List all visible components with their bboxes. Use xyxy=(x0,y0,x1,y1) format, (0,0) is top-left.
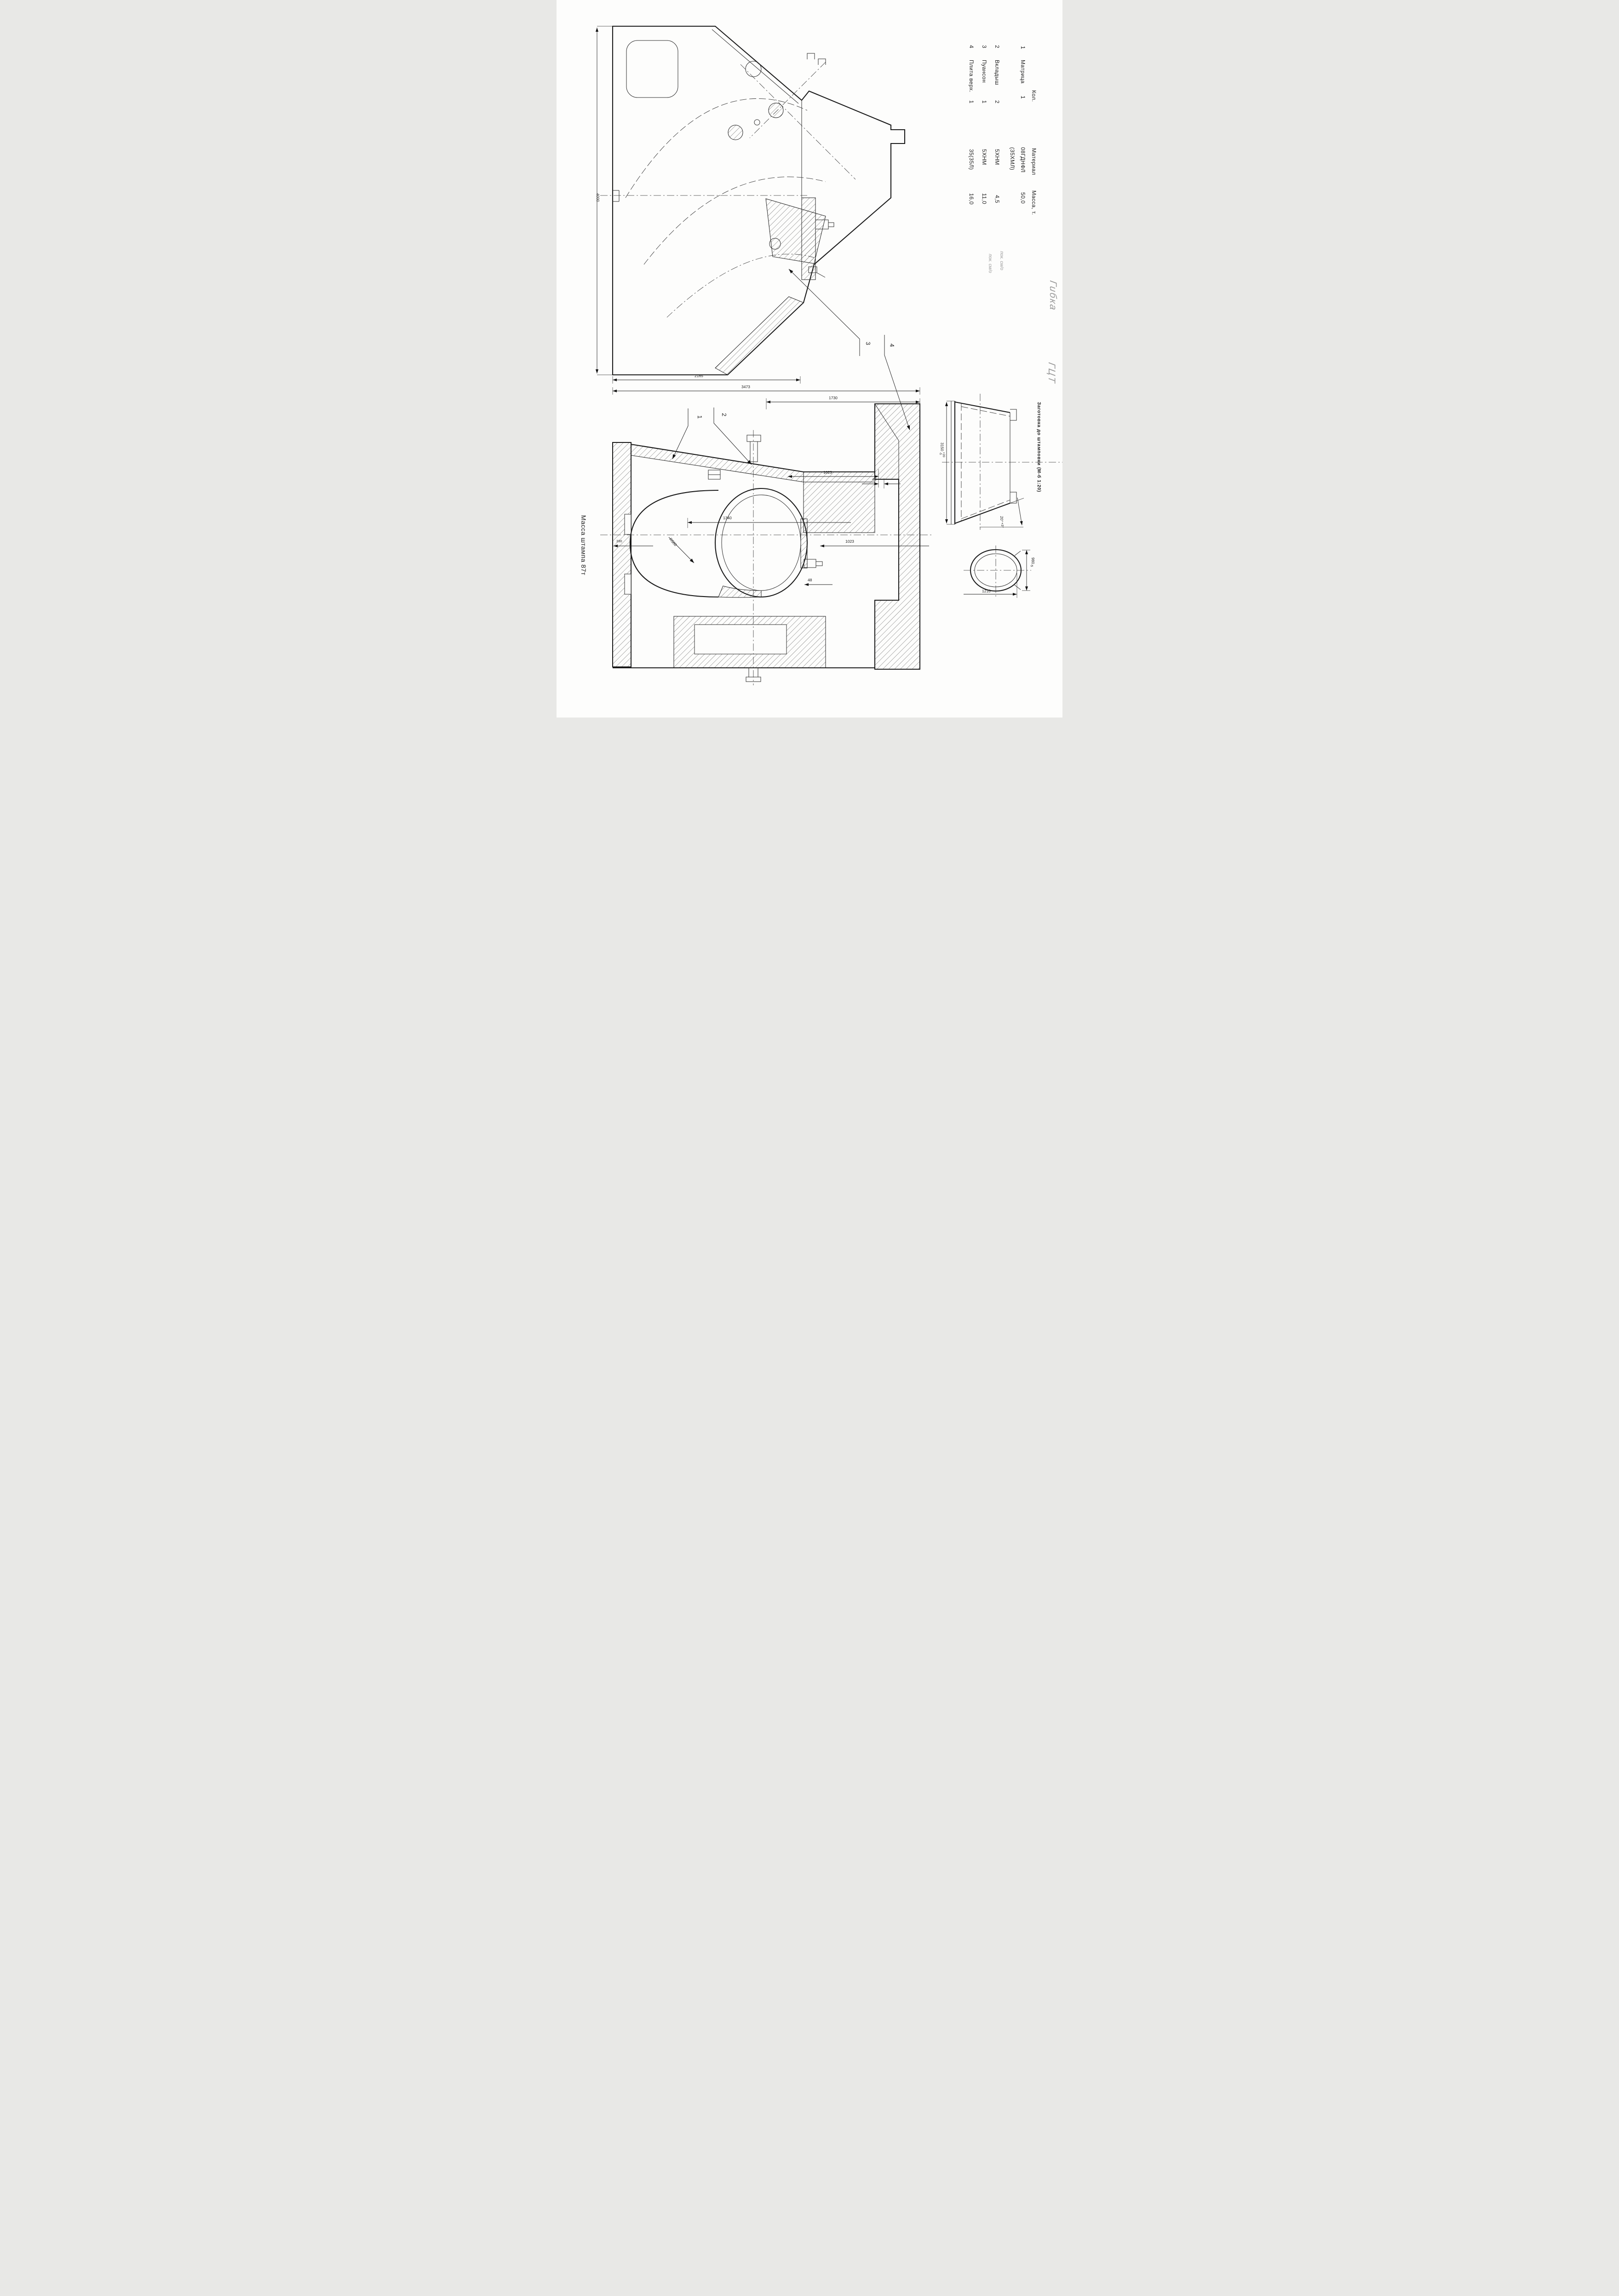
punch-section xyxy=(766,199,826,264)
dowel-section xyxy=(769,103,783,118)
left-wall xyxy=(613,442,631,667)
dim-980-tol: -5 xyxy=(1030,564,1033,567)
dim-1730: 1730 xyxy=(829,396,838,400)
dim-980-value: 980 xyxy=(1031,557,1035,564)
dim-3473: 3473 xyxy=(741,385,750,389)
top-plate xyxy=(804,472,875,482)
pencil-note-row3: пок. см/о xyxy=(987,254,993,273)
row2-material: 5ХНМ xyxy=(994,149,1000,165)
dim-4000: 4000 xyxy=(596,193,600,202)
blank-view xyxy=(942,394,1062,530)
cusp-section xyxy=(718,586,761,597)
dim-1210: 1210 xyxy=(982,589,991,593)
row1-name: Матрица xyxy=(1020,60,1026,84)
row1-material: 08ГДНФЛ xyxy=(1020,147,1026,172)
table-header-qty: Кол. xyxy=(1031,90,1037,102)
dim-angle: 20°+3° xyxy=(999,516,1004,528)
row2-mass: 4,5 xyxy=(994,195,1000,203)
dim-3150: 3150+20-5 xyxy=(939,442,945,457)
section-marks xyxy=(807,53,826,65)
dim-angle-value: 20° xyxy=(999,516,1004,522)
dim-2165: 2165 xyxy=(695,374,703,378)
dim-48: 48 xyxy=(808,578,812,582)
row1-alt-material: (35ХМЛ) xyxy=(1009,147,1015,170)
wall-notch xyxy=(625,574,631,594)
row3-material: 5ХНМ xyxy=(981,149,987,165)
blank-caption: Заготовка до штамповки (М-б 1:20) xyxy=(1036,402,1041,492)
row2-qty: 2 xyxy=(994,100,1000,103)
slot-opening xyxy=(626,40,678,98)
bolt-body xyxy=(750,442,758,462)
row1-qty: 1 xyxy=(1020,96,1026,99)
row4-no: 4 xyxy=(968,45,974,48)
row3-no: 3 xyxy=(981,45,987,48)
pencil-note-row2: пок. см/о xyxy=(999,251,1004,270)
table-header-material: Материал xyxy=(1031,148,1037,175)
dim-3150-tol-plus: +20 xyxy=(942,452,945,457)
row1-mass: 50,0 xyxy=(1020,192,1026,204)
upper-view xyxy=(597,26,905,375)
angle-leader xyxy=(1017,498,1022,525)
bolt-hole xyxy=(746,61,761,77)
dim-3150-value: 3150 xyxy=(940,442,944,451)
dim-3150-tol-minus: -5 xyxy=(939,452,942,457)
dim-angle-tol: +3° xyxy=(1000,522,1005,528)
row4-mass: 16,0 xyxy=(968,193,974,205)
drawing-linework xyxy=(557,0,1062,717)
handwritten-title-line2: ГЦТ xyxy=(1046,362,1056,384)
row2-name: Вкладыш xyxy=(994,60,1000,85)
right-flange xyxy=(875,404,920,669)
row4-qty: 1 xyxy=(968,100,974,103)
callout-4: 4 xyxy=(889,344,895,347)
row3-qty: 1 xyxy=(981,100,987,103)
bolt-stem xyxy=(816,562,822,566)
row4-material: 35(35Л) xyxy=(968,149,974,170)
dim-1023: 1023 xyxy=(823,471,832,475)
callout-3: 3 xyxy=(865,342,871,345)
dim-1023b: 1023 xyxy=(845,540,854,544)
punch-shaft xyxy=(804,482,875,533)
row3-name: Пуансон xyxy=(981,60,987,83)
mass-note: Масса штампа 87т xyxy=(580,515,587,575)
bolt-head xyxy=(747,435,761,442)
wall-notch xyxy=(625,514,631,534)
callout-3-leader xyxy=(789,269,860,356)
row1-no: 1 xyxy=(1020,46,1026,49)
dim-40: 40 xyxy=(872,477,876,482)
table-header-mass: Масса, т. xyxy=(1031,190,1037,215)
handwritten-title-line1: Гибка xyxy=(1048,280,1058,311)
callout-2: 2 xyxy=(721,413,727,416)
row3-mass: 11,0 xyxy=(981,193,987,204)
row4-name: Плита верх. xyxy=(968,60,974,92)
dim-980: 980-5 xyxy=(1031,557,1035,567)
callout-2-leader xyxy=(714,408,752,465)
scanned-die-drawing: Кол. Материал Масса, т. 1 Матрица 1 08ГД… xyxy=(557,0,1062,717)
small-hole xyxy=(754,120,760,125)
dim-1340: 1340 xyxy=(723,516,732,520)
small-end-rim xyxy=(1010,409,1016,503)
die-wall-section xyxy=(715,297,804,375)
dim-330: 330 xyxy=(616,540,622,543)
bolt-stem xyxy=(828,223,834,227)
dowel-section xyxy=(728,125,743,140)
cavity-right-lobe xyxy=(715,488,807,597)
blank-section-view xyxy=(964,545,1031,599)
row2-no: 2 xyxy=(994,45,1000,48)
top-plate-slope xyxy=(631,444,804,482)
callout-1: 1 xyxy=(696,415,703,419)
